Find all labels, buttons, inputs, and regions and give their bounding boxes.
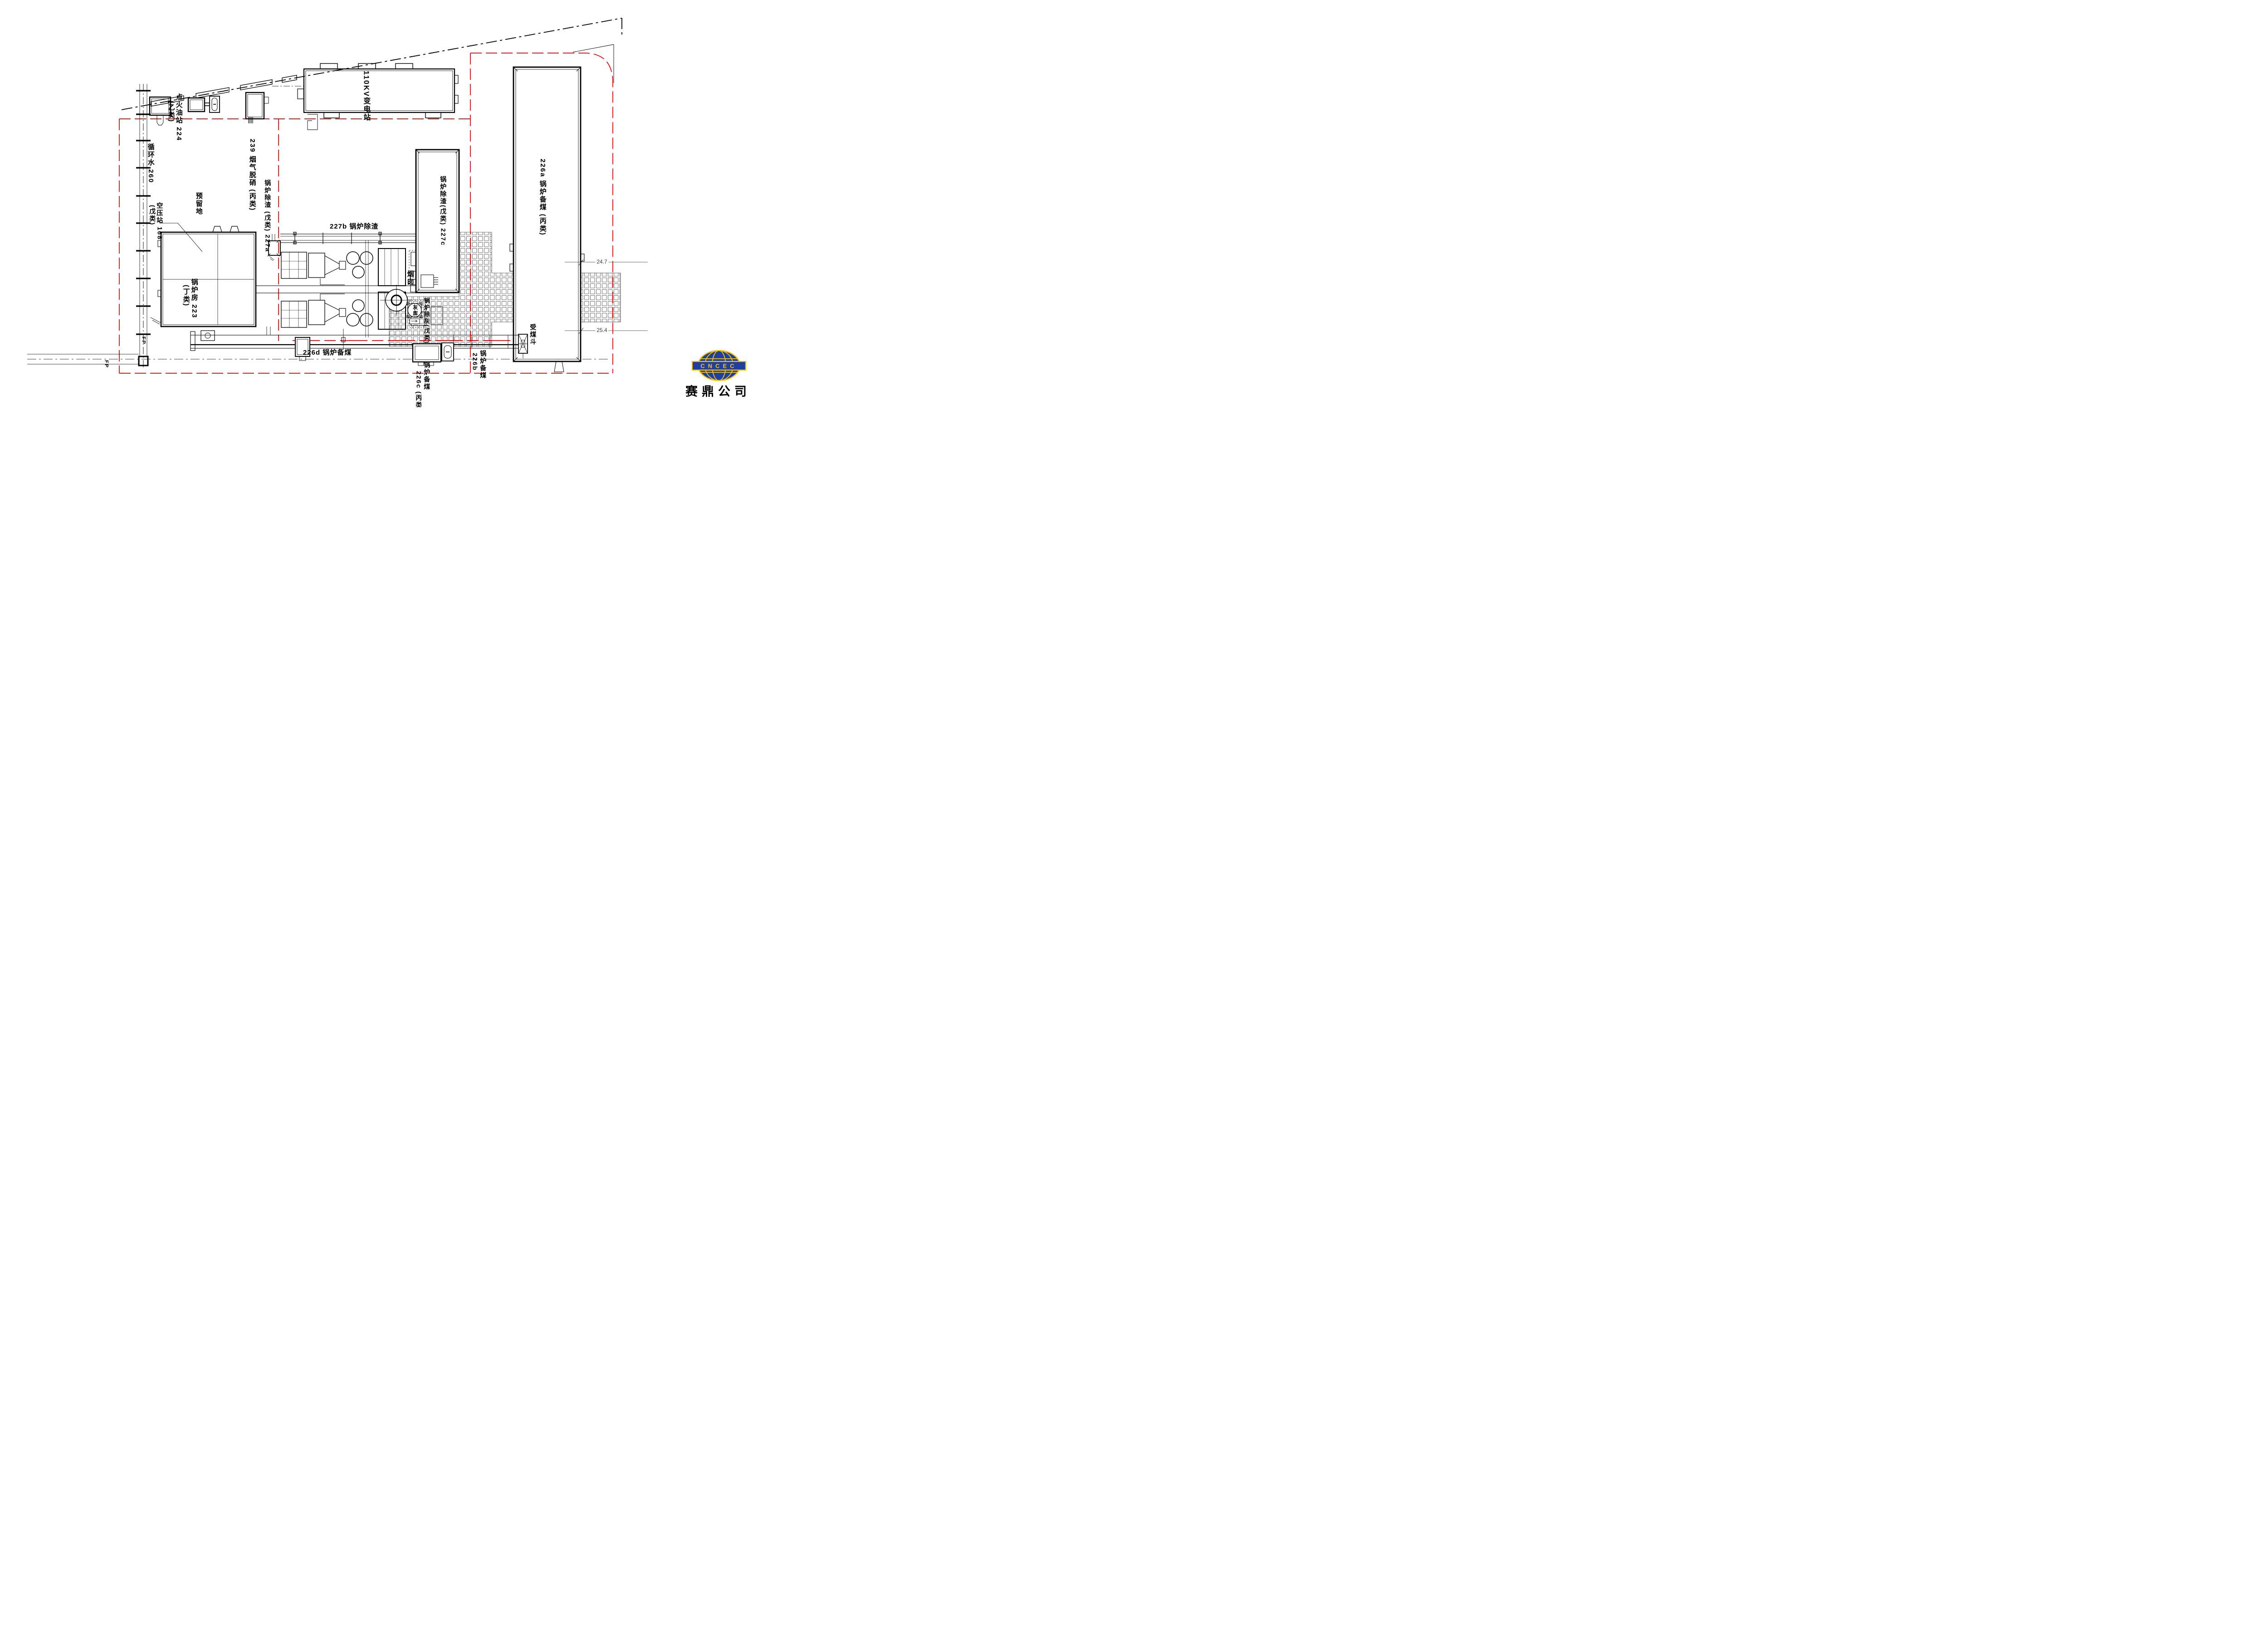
substation-building [272, 63, 458, 130]
boiler-house-building [151, 223, 256, 327]
coal-storage-226a [510, 67, 584, 372]
slag-conveyor-227b [280, 232, 416, 244]
transfer-tower [295, 337, 310, 361]
logo-acronym-text: CNCEC [700, 363, 737, 370]
site-plan-drawing [0, 0, 754, 407]
slag-building-227c [411, 150, 459, 293]
oil-tank-unit [188, 96, 220, 112]
logo-company-text: 赛鼎公司 [685, 382, 751, 400]
coal-tower-226c [413, 343, 454, 366]
site-plan-canvas: 循环水 260点火油站 224(乙类)239 烟气脱硝 (丙类)110KV变电站… [0, 0, 754, 407]
